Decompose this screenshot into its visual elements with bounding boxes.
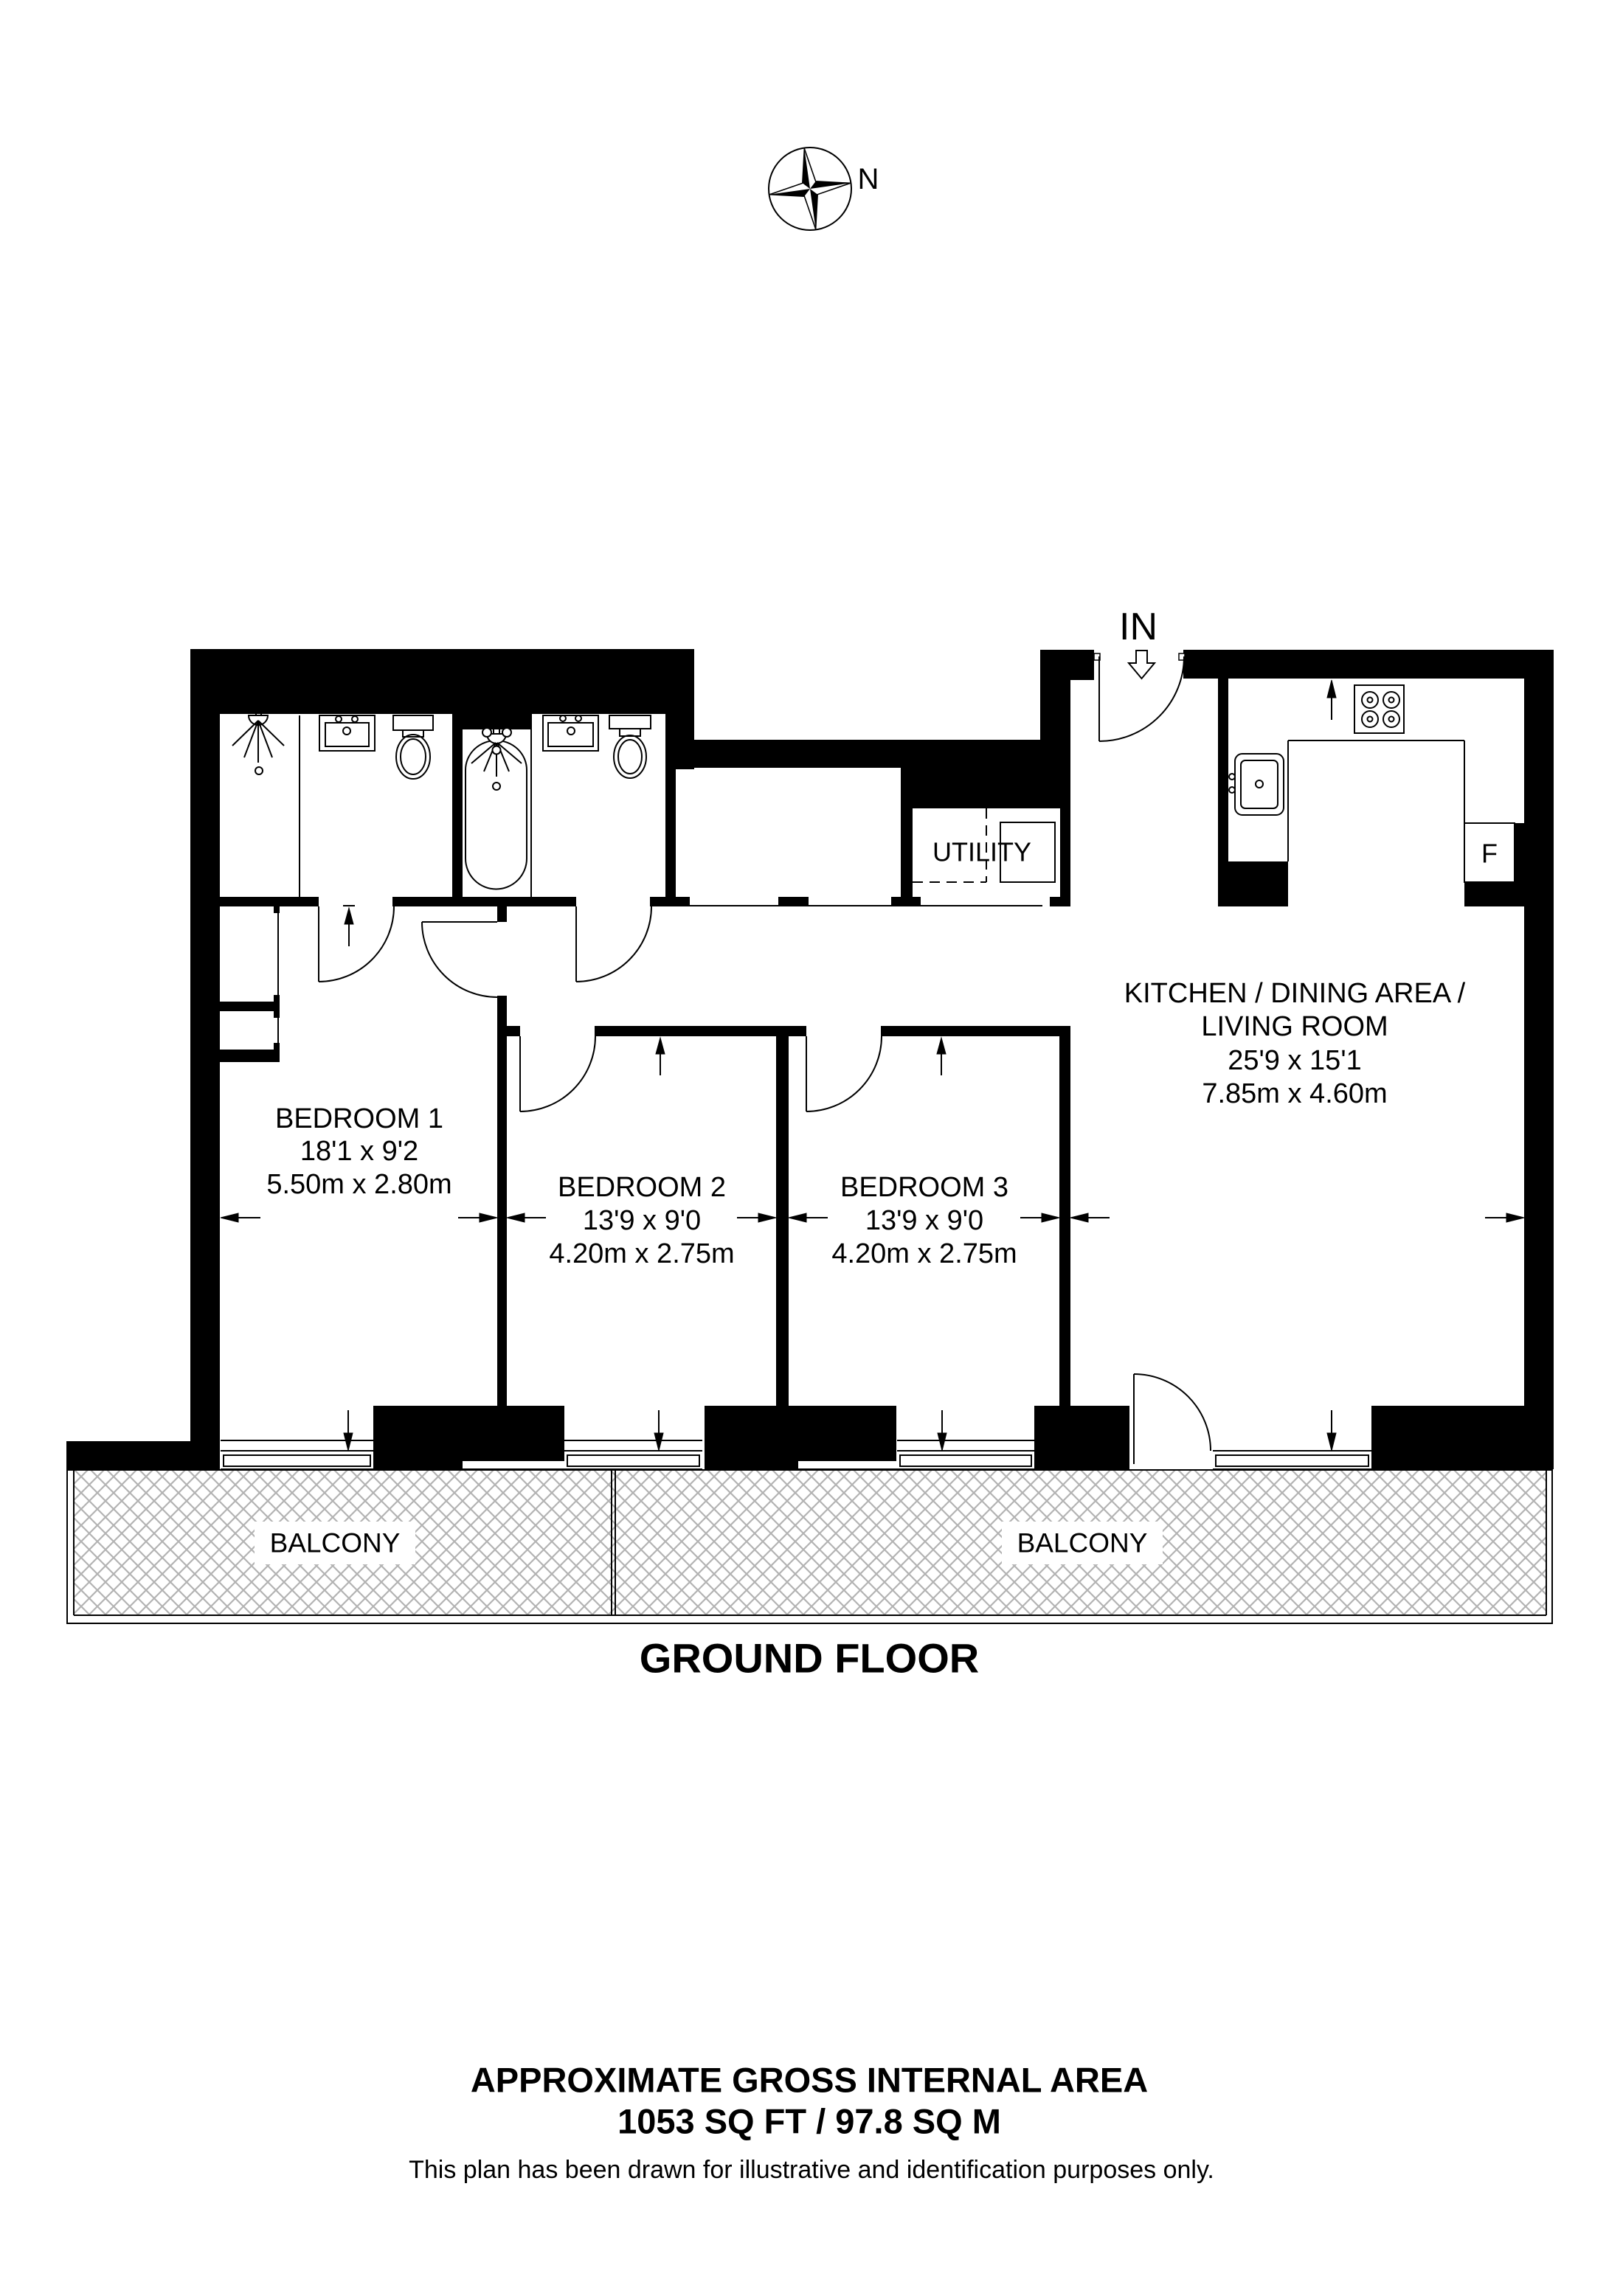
svg-text:BEDROOM 1: BEDROOM 1 [275,1103,443,1134]
svg-text:UTILITY: UTILITY [932,837,1031,867]
svg-text:18'1 x 9'2: 18'1 x 9'2 [300,1136,418,1167]
svg-text:This plan has been drawn for i: This plan has been drawn for illustrativ… [409,2156,1214,2184]
svg-text:13'9 x 9'0: 13'9 x 9'0 [583,1205,701,1236]
svg-text:LIVING ROOM: LIVING ROOM [1201,1011,1388,1042]
svg-text:5.50m x 2.80m: 5.50m x 2.80m [266,1169,451,1200]
svg-text:IN: IN [1119,606,1157,648]
svg-text:1053 SQ FT / 97.8 SQ M: 1053 SQ FT / 97.8 SQ M [617,2102,1001,2141]
svg-text:KITCHEN / DINING AREA /: KITCHEN / DINING AREA / [1124,978,1466,1009]
svg-text:4.20m x 2.75m: 4.20m x 2.75m [831,1238,1017,1269]
svg-text:13'9 x 9'0: 13'9 x 9'0 [865,1205,983,1236]
svg-text:N: N [858,163,879,195]
svg-text:BALCONY: BALCONY [270,1528,401,1558]
svg-text:F: F [1481,839,1498,869]
svg-text:APPROXIMATE GROSS INTERNAL ARE: APPROXIMATE GROSS INTERNAL AREA [471,2061,1148,2100]
svg-text:BEDROOM 3: BEDROOM 3 [840,1172,1008,1203]
svg-text:7.85m x 4.60m: 7.85m x 4.60m [1202,1078,1387,1109]
svg-text:GROUND FLOOR: GROUND FLOOR [640,1635,979,1682]
svg-text:25'9 x 15'1: 25'9 x 15'1 [1228,1045,1361,1076]
svg-text:BEDROOM 2: BEDROOM 2 [558,1172,726,1203]
svg-text:BALCONY: BALCONY [1017,1528,1148,1558]
svg-text:4.20m x 2.75m: 4.20m x 2.75m [549,1238,734,1269]
